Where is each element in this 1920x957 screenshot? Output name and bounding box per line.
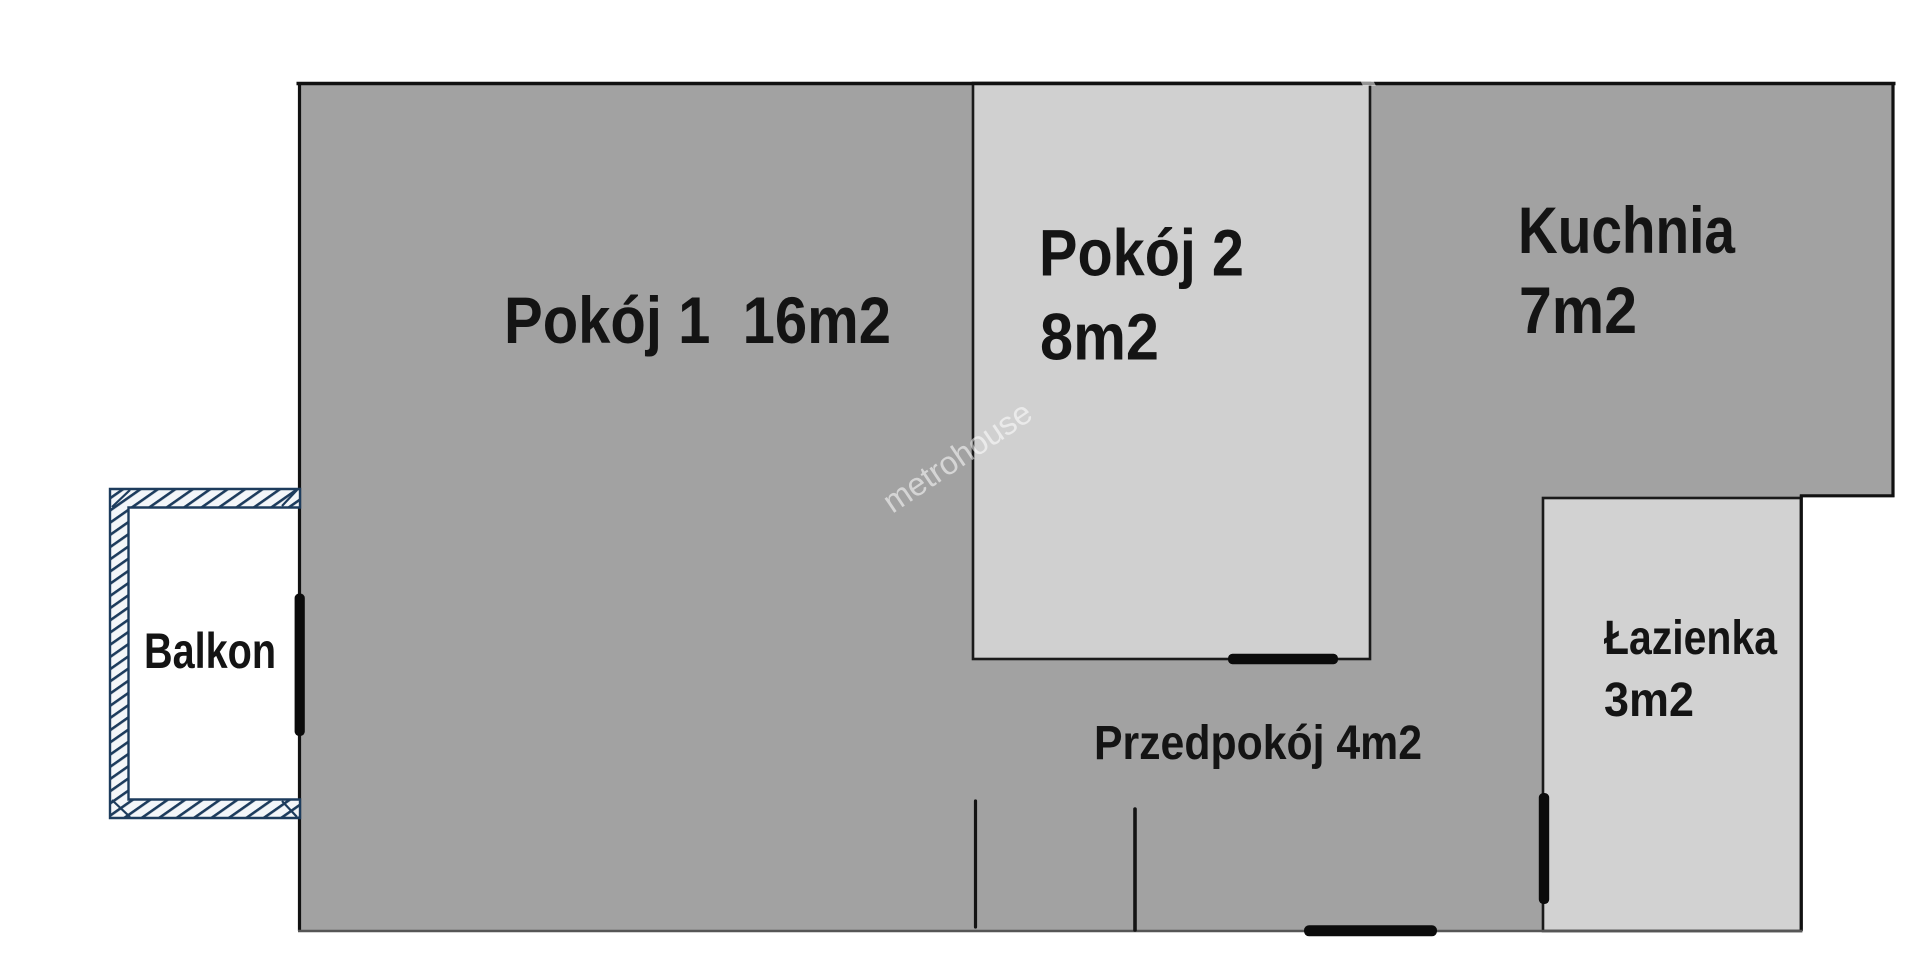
- svg-text:Balkon: Balkon: [144, 623, 276, 679]
- svg-text:7m2: 7m2: [1519, 273, 1637, 347]
- svg-text:Pokój 1 16m2: Pokój 1 16m2: [504, 283, 891, 357]
- svg-text:Kuchnia: Kuchnia: [1518, 193, 1736, 267]
- svg-text:8m2: 8m2: [1040, 300, 1159, 374]
- svg-text:Przedpokój 4m2: Przedpokój 4m2: [1094, 717, 1422, 770]
- svg-text:Pokój 2: Pokój 2: [1039, 216, 1244, 290]
- svg-text:3m2: 3m2: [1604, 674, 1694, 727]
- svg-text:Łazienka: Łazienka: [1604, 612, 1777, 665]
